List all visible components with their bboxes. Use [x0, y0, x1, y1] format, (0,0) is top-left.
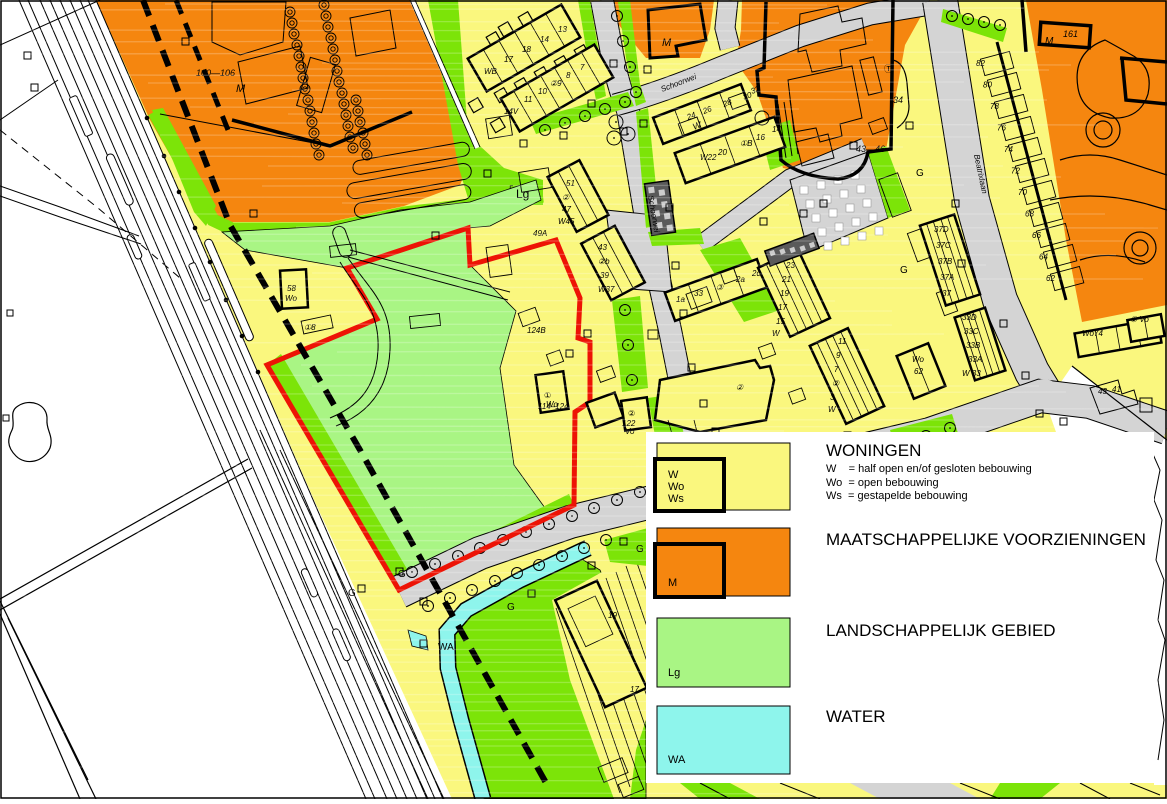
svg-text:37A: 37A: [940, 273, 954, 282]
svg-text:16: 16: [756, 133, 765, 142]
svg-text:3: 3: [830, 393, 835, 402]
svg-text:19: 19: [608, 611, 617, 620]
svg-text:20: 20: [717, 148, 727, 157]
svg-text:Wo: Wo: [912, 355, 925, 364]
svg-text:Ⓣ: Ⓣ: [884, 64, 893, 74]
svg-text:WATER: WATER: [826, 707, 886, 726]
svg-text:W = half open en/of geslote: W = half open en/of gesloten bebouwing: [826, 463, 1032, 475]
svg-text:WA: WA: [438, 642, 454, 653]
svg-text:G: G: [507, 602, 515, 613]
svg-text:17: 17: [630, 685, 639, 694]
svg-text:② Vo: ② Vo: [1130, 315, 1149, 324]
svg-text:124B: 124B: [527, 326, 546, 335]
svg-text:33B: 33B: [966, 341, 981, 350]
svg-text:47: 47: [562, 205, 571, 214]
svg-text:62: 62: [914, 367, 923, 376]
svg-text:14: 14: [540, 35, 549, 44]
svg-text:②: ②: [736, 383, 744, 392]
svg-text:74: 74: [1004, 145, 1013, 154]
svg-text:Wo = open bebouwing: Wo = open bebouwing: [826, 477, 939, 489]
svg-text:100—106: 100—106: [196, 68, 235, 78]
svg-text:WONINGEN: WONINGEN: [826, 441, 921, 460]
svg-text:43: 43: [598, 243, 607, 252]
svg-text:Wo: Wo: [285, 294, 298, 303]
svg-text:②9: ②9: [550, 79, 562, 88]
svg-text:M: M: [662, 37, 672, 49]
svg-text:51: 51: [566, 179, 575, 188]
svg-text:WA: WA: [668, 754, 686, 766]
svg-text:Wo74: Wo74: [1082, 329, 1103, 338]
svg-text:33A: 33A: [968, 355, 982, 364]
svg-text:Ws = gestapelde bebouwing: Ws = gestapelde bebouwing: [826, 490, 968, 502]
svg-text:7: 7: [834, 365, 839, 374]
svg-text:78: 78: [990, 102, 999, 111]
svg-text:②: ②: [628, 409, 635, 418]
svg-text:W45: W45: [558, 217, 575, 226]
svg-text:33D: 33D: [962, 313, 977, 322]
svg-text:17: 17: [504, 55, 513, 64]
svg-text:M: M: [1045, 36, 1054, 47]
svg-text:43: 43: [1098, 387, 1107, 396]
svg-text:Ws: Ws: [668, 493, 684, 505]
svg-text:Lg: Lg: [516, 187, 529, 201]
svg-text:W37: W37: [598, 285, 615, 294]
svg-text:9: 9: [836, 351, 841, 360]
svg-text:33C: 33C: [964, 327, 979, 336]
svg-text:161: 161: [1063, 29, 1078, 39]
svg-text:72: 72: [1011, 167, 1020, 176]
svg-text:14: 14: [772, 125, 781, 134]
svg-text:13: 13: [558, 25, 567, 34]
svg-text:Lg: Lg: [668, 667, 680, 679]
svg-text:M: M: [236, 83, 246, 95]
svg-text:19: 19: [780, 289, 789, 298]
svg-text:10: 10: [538, 87, 547, 96]
svg-text:①: ①: [544, 391, 551, 400]
svg-text:58: 58: [287, 284, 296, 293]
svg-text:37C: 37C: [936, 241, 951, 250]
svg-text:49A: 49A: [533, 229, 547, 238]
svg-text:Wo: Wo: [668, 481, 684, 493]
svg-text:70: 70: [1018, 188, 1027, 197]
svg-text:82: 82: [976, 59, 985, 68]
svg-text:M: M: [668, 577, 677, 589]
svg-text:1a: 1a: [676, 295, 685, 304]
svg-text:37: 37: [942, 289, 951, 298]
svg-text:MAATSCHAPPELIJKE VOORZIENINGEN: MAATSCHAPPELIJKE VOORZIENINGEN: [826, 530, 1146, 549]
svg-text:8: 8: [566, 71, 571, 80]
svg-text:⌜: ⌜: [509, 185, 514, 196]
svg-text:W: W: [668, 469, 679, 481]
svg-text:G: G: [900, 265, 908, 276]
svg-text:66: 66: [1032, 231, 1041, 240]
svg-text:64: 64: [1039, 253, 1048, 262]
svg-text:W 33: W 33: [962, 369, 981, 378]
svg-text:43—46: 43—46: [856, 144, 885, 154]
svg-text:37D: 37D: [934, 225, 949, 234]
svg-text:80: 80: [983, 81, 992, 90]
svg-text:LANDSCHAPPELIJK GEBIED: LANDSCHAPPELIJK GEBIED: [826, 621, 1056, 640]
svg-text:WB: WB: [484, 67, 498, 76]
